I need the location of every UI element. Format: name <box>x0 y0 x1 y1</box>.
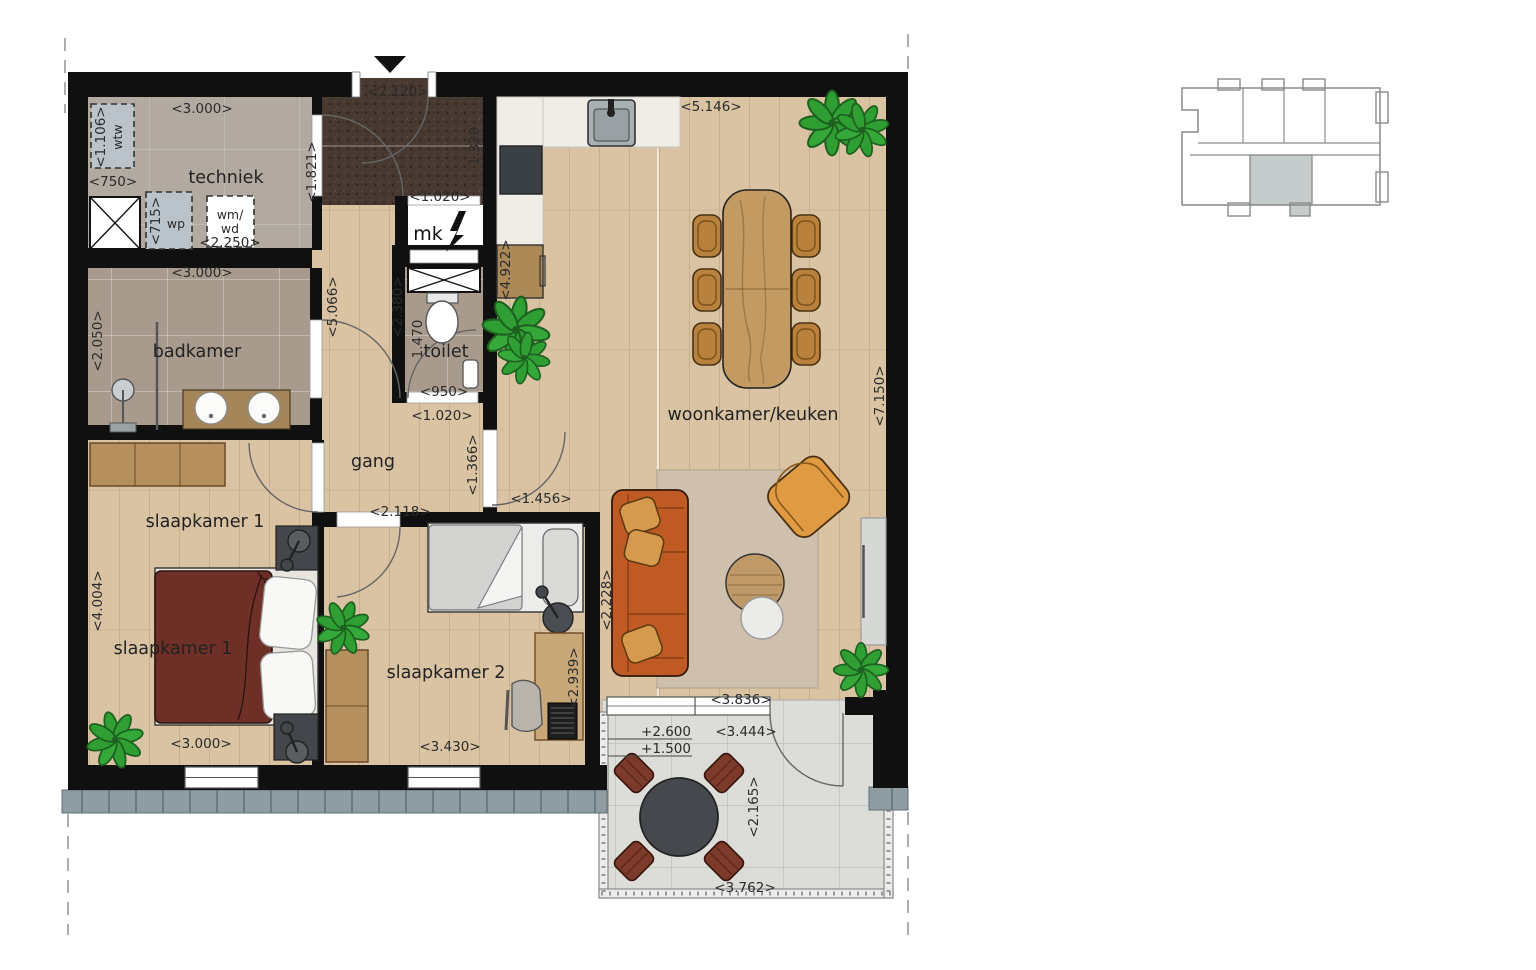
pillow <box>543 529 578 606</box>
dim: <3.000> <box>171 101 232 117</box>
floorplan-page: techniek badkamer toilet gang woonkamer/… <box>0 0 1536 970</box>
dim: <1.106> <box>93 106 109 167</box>
unit-label-wmwd2: wd <box>221 221 239 236</box>
dining-chair <box>693 269 721 311</box>
door-opening-badkamer <box>310 320 322 398</box>
room-label-slaapkamer1-b: slaapkamer 1 <box>114 639 233 659</box>
unit-label-wmwd1: wm/ <box>217 207 244 222</box>
wall-right <box>886 72 908 700</box>
dim: <3.000> <box>170 736 231 752</box>
kitchen-sink <box>588 99 635 146</box>
dim: <3.444> <box>715 724 776 740</box>
unit-label-wtw: wtw <box>110 124 125 149</box>
dim: <3.762> <box>714 880 775 896</box>
dim: <2.380> <box>390 276 406 337</box>
plant <box>834 643 889 698</box>
unit-label-mk: mk <box>413 223 443 245</box>
kitchen-appliance <box>500 146 542 194</box>
room-label-woonkamer: woonkamer/keuken <box>667 405 838 425</box>
window-slaap1 <box>185 767 258 788</box>
sink-right <box>248 392 280 424</box>
room-label-toilet: toilet <box>424 342 469 362</box>
dim: <4.922> <box>498 239 514 300</box>
dim: <1.020> <box>411 408 472 424</box>
wall-bottom <box>68 765 607 790</box>
dining-chair <box>693 323 721 365</box>
dim: <5.146> <box>680 99 741 115</box>
dim: <1.020> <box>409 189 470 205</box>
dim: <1.456> <box>510 491 571 507</box>
room-label-slaapkamer2: slaapkamer 2 <box>387 663 506 683</box>
wall-right-balcony <box>873 690 908 788</box>
toilet-shaft <box>408 268 480 292</box>
wall-balcony-door-side <box>845 697 875 715</box>
nightstand-top <box>276 526 318 571</box>
dim: <1.821> <box>304 141 320 202</box>
jamb-entrance-right <box>428 72 436 97</box>
dim: <750> <box>89 174 137 190</box>
minimap-tab <box>1376 92 1388 123</box>
vent-toilet-top <box>410 250 478 263</box>
dim: <3.836> <box>710 692 771 708</box>
pillow <box>258 575 317 650</box>
unit-label-wp: wp <box>167 216 185 231</box>
dim: <1.366> <box>465 434 481 495</box>
dim: <2.939> <box>566 647 582 708</box>
door-opening-slaap1 <box>312 443 324 512</box>
room-label-badkamer: badkamer <box>153 342 242 362</box>
bed-single <box>428 523 583 612</box>
facade-strip-bottom <box>62 790 607 813</box>
dim: <4.004> <box>90 570 106 631</box>
window-slaap2 <box>408 767 480 788</box>
balcony-table <box>640 778 718 856</box>
desk-chair <box>506 680 542 731</box>
dim: 1.320 <box>467 127 483 166</box>
tv-cabinet <box>861 518 886 645</box>
toilet-bowl <box>426 293 458 343</box>
room-label-slaapkamer1-a: slaapkamer 1 <box>146 512 265 532</box>
shaft-box <box>90 197 140 249</box>
wall-slaap2-woonkamer <box>585 512 600 765</box>
room-label-techniek: techniek <box>188 168 264 188</box>
dim: <3.000> <box>171 265 232 281</box>
dim: <2.165> <box>746 776 762 837</box>
wall-top-left <box>68 72 355 97</box>
dim: <2.228> <box>599 569 615 630</box>
dining-chair <box>792 323 820 365</box>
dining-table <box>723 190 791 388</box>
dim: 1.470 <box>410 320 426 359</box>
dim: <7.150> <box>872 365 888 426</box>
dining-chair <box>792 215 820 257</box>
minimap <box>1182 79 1388 216</box>
dim: +1.500 <box>641 741 691 757</box>
wall-top-right <box>435 72 908 97</box>
dining-chair <box>792 269 820 311</box>
dim: <950> <box>420 384 468 400</box>
dim: +2.600 <box>641 724 691 740</box>
minimap-tab <box>1376 172 1388 202</box>
wardrobe-slaap1 <box>90 443 225 486</box>
dim: <715> <box>148 197 164 245</box>
pillow <box>260 650 316 719</box>
dim: <2.250> <box>199 235 260 251</box>
facade-strip-right <box>869 787 908 810</box>
jamb-entrance-left <box>352 72 360 97</box>
floorplan-canvas: techniek badkamer toilet gang woonkamer/… <box>0 0 1536 970</box>
dim: <2.118> <box>369 504 430 520</box>
nightstand-bottom <box>274 714 318 763</box>
entrance-arrow-icon <box>374 56 406 73</box>
sink-left <box>195 392 227 424</box>
wall-left <box>68 72 88 790</box>
sofa <box>612 490 688 676</box>
dim: <3.430> <box>419 739 480 755</box>
wall-mk-left <box>395 196 408 250</box>
wardrobe-slaap2 <box>326 650 368 762</box>
dining-area <box>693 190 820 388</box>
dim: <2.120> <box>367 84 428 100</box>
dining-chair <box>693 215 721 257</box>
minimap-highlight-unit <box>1250 155 1312 205</box>
dim: <2.050> <box>90 310 106 371</box>
door-opening-woonkamer <box>483 430 497 507</box>
dim: <5.066> <box>325 276 341 337</box>
room-label-gang: gang <box>351 452 395 472</box>
